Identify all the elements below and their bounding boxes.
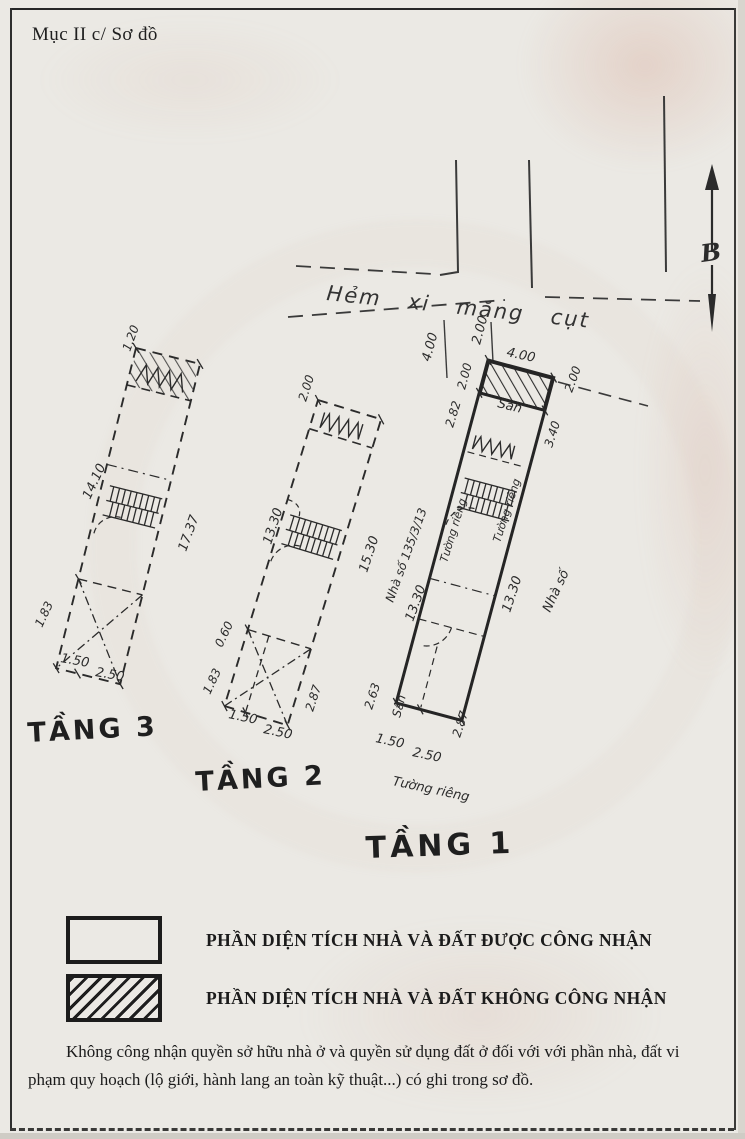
floor2-dim-bottom-w1: 1.50 — [227, 707, 258, 728]
floor2-dim-left-lower1: 1.83 — [200, 666, 224, 696]
floor1-dim-right-upper: 3.40 — [542, 419, 564, 449]
floor1-dim-length-right: 13.30 — [500, 574, 526, 614]
floor2-outline — [224, 400, 381, 725]
floor1-dim-bottom-w2: 2.50 — [411, 745, 442, 766]
north-arrow: B — [698, 164, 723, 332]
floor3-dim-length-left: 14.10 — [80, 462, 109, 502]
floor1-wall-bottom-label: Tường riêng — [391, 774, 471, 805]
floor2-railing-icon — [320, 412, 363, 439]
page-border-bottom — [10, 1128, 734, 1131]
floor2-dim-bottom-w2: 2.50 — [262, 722, 293, 743]
floor3-plan — [51, 343, 205, 689]
floor1-dim-hatch-depth-left: 2.00 — [454, 361, 475, 391]
floor2-dim-length-right: 15.30 — [357, 534, 383, 574]
floor1-dim-bottom-left: 2.63 — [362, 681, 384, 711]
alley-width-dim: 4.00 — [419, 331, 441, 363]
floor3-dim-bottom-w2: 2.50 — [94, 665, 125, 685]
floor2-dim-left-lower2: 0.60 — [212, 619, 236, 649]
floor1-dim-bottom-w1: 1.50 — [374, 731, 405, 752]
floor2-dim-bottom-right: 2.87 — [303, 683, 325, 713]
floor1-dim-top-width: 4.00 — [505, 345, 536, 366]
legend-label-not-recognized: PHẦN DIỆN TÍCH NHÀ VÀ ĐẤT KHÔNG CÔNG NHẬ… — [206, 988, 667, 1009]
legend-row-recognized: PHẦN DIỆN TÍCH NHÀ VÀ ĐẤT ĐƯỢC CÔNG NHẬN — [66, 916, 652, 964]
floor1-yard-door-arc — [421, 621, 452, 652]
floor2-dim-length-left: 13.30 — [261, 506, 287, 546]
legend-label-recognized: PHẦN DIỆN TÍCH NHÀ VÀ ĐẤT ĐƯỢC CÔNG NHẬN — [206, 930, 652, 951]
north-arrow-head — [705, 164, 719, 190]
floor1-outline — [396, 360, 554, 721]
floor2-title: TẦNG 2 — [195, 756, 327, 798]
floor3-dim-bottom-w1: 1.50 — [59, 651, 90, 671]
floor3-balcony-hatch — [128, 349, 199, 400]
floor1-dim-length-left: 13.30 — [403, 583, 430, 623]
floor2-dim-top: 2.00 — [296, 373, 318, 403]
floor3-dim-left-lower: 1.83 — [32, 599, 56, 629]
floor1-yard-bottom-label: Sân — [389, 693, 408, 718]
site-plan-diagram: Hẻm xi măng cụt 4.00 2.00 B — [0, 0, 745, 905]
floor1-dim-bottom-right: 2.87 — [450, 709, 472, 739]
north-arrow-tail — [708, 294, 716, 332]
footnote-paragraph: Không công nhận quyền sở hữu nhà ở và qu… — [28, 1038, 720, 1093]
floor2-stairs-icon — [281, 515, 341, 559]
floor3-stairs-icon — [103, 486, 163, 528]
document-page: Mục II c/ Sơ đồ Hẻm xi măng cụt — [0, 0, 745, 1139]
floor1-dim-right-offset: 2.00 — [562, 364, 584, 394]
floor3-title: TẦNG 3 — [27, 707, 159, 749]
floor1-dim-left-upper: 2.82 — [442, 399, 463, 429]
floor1-title: TẦNG 1 — [365, 821, 515, 866]
floor3-dim-length-right: 17.37 — [176, 513, 203, 554]
alley-boundary-lines — [288, 96, 700, 406]
scan-edge — [0, 1133, 745, 1139]
legend-swatch-not-recognized — [66, 974, 162, 1022]
legend-row-not-recognized: PHẦN DIỆN TÍCH NHÀ VÀ ĐẤT KHÔNG CÔNG NHẬ… — [66, 974, 667, 1022]
floor1-railing-icon — [472, 435, 514, 459]
legend-swatch-recognized — [66, 916, 162, 964]
neighbor-house-label: Nhà số — [540, 566, 573, 615]
alley-label: Hẻm xi măng cụt — [325, 281, 591, 333]
north-label: B — [698, 236, 723, 268]
